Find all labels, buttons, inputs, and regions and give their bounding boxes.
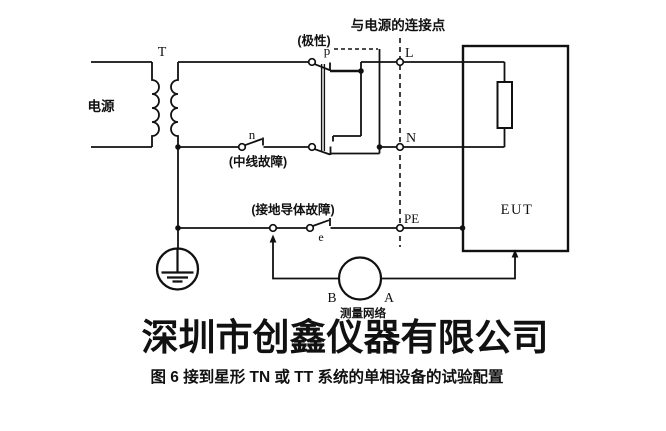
neutral-terminal-label: N [406, 131, 416, 146]
line-terminal-label: L [405, 46, 414, 61]
junction-dots [175, 68, 518, 257]
circuit-diagram: T 电源 n (中线故障) (极性) p 与电源的连接点 L N PE (接地导… [0, 0, 666, 431]
figure-page: T 电源 n (中线故障) (极性) p 与电源的连接点 L N PE (接地导… [0, 0, 666, 431]
earth-ground-icon [162, 249, 194, 282]
earth-fault-label: (接地导体故障) [251, 202, 334, 217]
transformer-label: T [158, 45, 167, 60]
terminal-a-label: A [384, 290, 394, 305]
earth-switch-terminal [307, 225, 314, 232]
eut-load-resistor [498, 82, 513, 128]
junction-dot [460, 225, 466, 231]
neutral-fault-label: (中线故障) [229, 154, 287, 169]
neutral-switch-terminal [239, 144, 246, 151]
measuring-network-b-wire [273, 241, 339, 279]
polarity-point-label: p [324, 43, 331, 58]
source-label: 电源 [88, 98, 115, 114]
watermark-text: 深圳市创鑫仪器有限公司 [142, 316, 549, 358]
pe-terminal-label: PE [404, 211, 419, 226]
transformer-primary-winding [152, 62, 159, 147]
neutral-connection-terminal [397, 144, 404, 151]
eut-label: EUT [501, 202, 534, 218]
pe-probe-terminal [270, 225, 277, 232]
terminal-b-label: B [327, 290, 336, 305]
polarity-bottom-terminal [309, 144, 316, 151]
neutral-switch-label: n [249, 127, 256, 142]
earth-switch-blade [313, 220, 329, 226]
eut-box [463, 46, 568, 251]
measuring-network-circle [339, 258, 381, 300]
polarity-cross-wire-1 [333, 62, 361, 142]
pe-connection-terminal [397, 225, 404, 232]
junction-dot [358, 68, 364, 74]
transformer-secondary-winding [171, 62, 178, 147]
supply-connection-label: 与电源的连接点 [351, 17, 446, 33]
polarity-bottom-blade [315, 149, 330, 154]
polarity-link-bar [322, 64, 325, 151]
junction-dot [175, 144, 181, 150]
figure-caption: 图 6 接到星形 TN 或 TT 系统的单相设备的试验配置 [150, 367, 503, 386]
measuring-network-a-wire [381, 256, 515, 279]
probe-arrow-icon [270, 235, 277, 243]
earth-switch-label: e [318, 230, 323, 244]
junction-dot [377, 144, 383, 150]
polarity-cross-wire-2 [331, 49, 380, 154]
wiring [91, 46, 568, 300]
line-connection-terminal [397, 59, 404, 66]
junction-dot [175, 225, 181, 231]
polarity-top-terminal [309, 59, 316, 66]
